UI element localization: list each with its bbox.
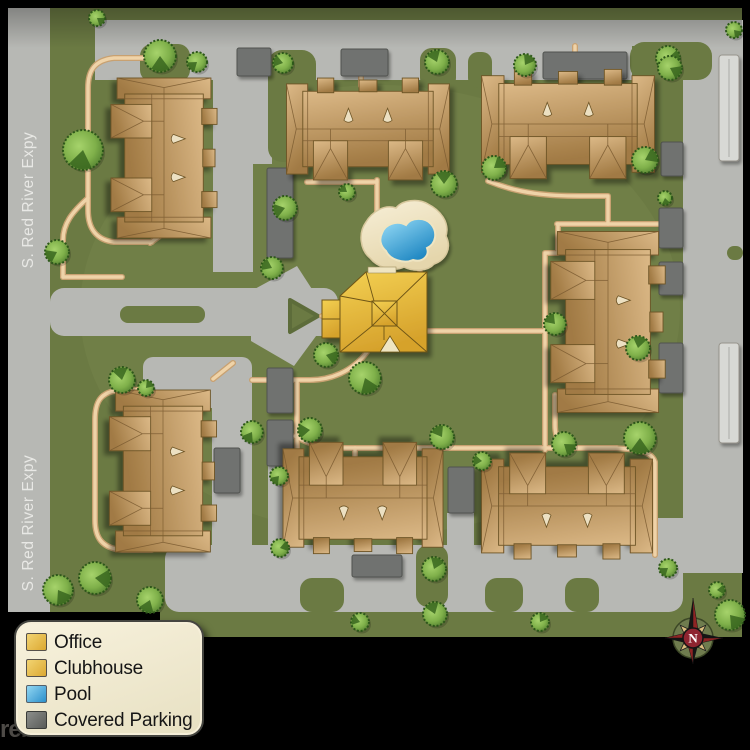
apartment-site-map: N S. Red River Expy S. Red River Expy Of… <box>0 0 750 750</box>
road <box>213 78 253 272</box>
compass-north-label: N <box>688 631 698 646</box>
apartment-building <box>482 453 653 559</box>
covered-parking <box>659 208 683 248</box>
legend-label: Covered Parking <box>54 711 193 730</box>
apartment-building <box>551 232 665 413</box>
pool-water <box>380 219 435 262</box>
top-shade <box>8 8 742 48</box>
covered-parking <box>448 467 474 513</box>
grass-island <box>727 246 743 260</box>
covered-parking <box>267 368 293 413</box>
covered-parking <box>214 448 240 493</box>
clubhouse-entry <box>368 267 396 273</box>
covered-parking <box>661 142 683 176</box>
covered-parking <box>341 49 388 76</box>
legend-swatch-pool <box>26 685 47 703</box>
legend-item-covered-parking: Covered Parking <box>26 707 202 733</box>
legend-label: Office <box>54 633 102 652</box>
apartment-building <box>109 390 216 552</box>
legend-label: Clubhouse <box>54 659 143 678</box>
legend-label: Pool <box>54 685 91 704</box>
street-label-red-river-expy-lower: S. Red River Expy <box>20 455 38 592</box>
apartment-building <box>283 442 443 553</box>
street-label-red-river-expy-upper: S. Red River Expy <box>20 132 38 269</box>
grass-island <box>565 578 599 612</box>
apartment-building <box>287 78 450 180</box>
covered-parking <box>237 48 271 76</box>
legend-swatch-covered-parking <box>26 711 47 729</box>
grass-island <box>300 578 344 612</box>
legend-item-office: Office <box>26 629 202 655</box>
apartment-building <box>111 78 217 238</box>
legend-item-clubhouse: Clubhouse <box>26 655 202 681</box>
covered-parking <box>352 555 402 577</box>
legend-swatch-clubhouse <box>26 659 47 677</box>
grass-island <box>120 306 205 323</box>
grass-island <box>485 578 523 612</box>
legend-item-pool: Pool <box>26 681 202 707</box>
legend-swatch-office <box>26 633 47 651</box>
apartment-building <box>482 69 655 178</box>
map-legend: OfficeClubhousePoolCovered Parking <box>14 620 204 737</box>
